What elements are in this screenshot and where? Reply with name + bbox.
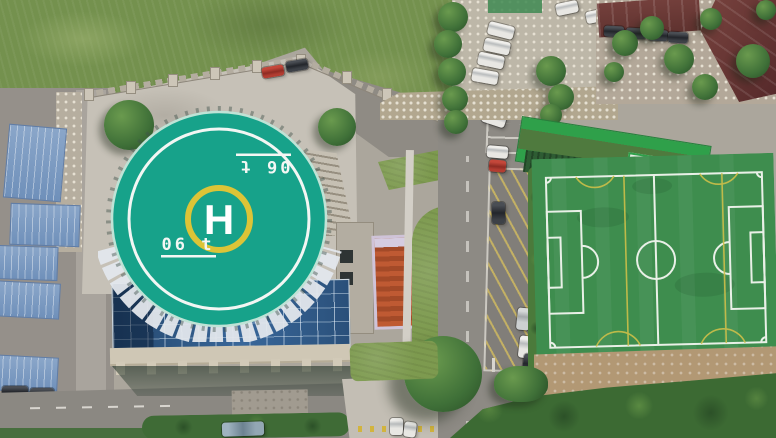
car <box>492 202 505 224</box>
aerial-photo: H 06 t 06 t <box>0 0 776 438</box>
car <box>390 418 403 435</box>
tree <box>640 16 664 40</box>
helipad: H 06 t 06 t <box>98 98 342 342</box>
tree <box>736 44 770 78</box>
weight-text-rotated: 06 t <box>238 156 291 176</box>
tree <box>700 8 722 30</box>
tree <box>536 56 566 86</box>
tree <box>434 30 462 58</box>
shed-roof <box>3 124 67 203</box>
tree <box>438 2 468 32</box>
soccer-field <box>531 153 776 361</box>
wall-pillar <box>168 74 178 87</box>
car <box>222 421 264 436</box>
wall-pillar <box>252 60 262 73</box>
bush-cluster <box>494 366 548 402</box>
car <box>489 159 507 172</box>
helipad-weight-marking-top: 06 t <box>236 154 291 177</box>
tree <box>664 44 694 74</box>
wall-pillar <box>342 71 352 84</box>
shed-roof <box>9 203 80 247</box>
car <box>668 31 689 43</box>
tree <box>442 86 468 112</box>
shed-roof <box>0 245 59 281</box>
tree <box>692 74 718 100</box>
helipad-weight-marking: 06 t <box>161 235 216 258</box>
shed-roof <box>0 280 61 319</box>
green-paint-patch <box>488 0 542 13</box>
tree <box>604 62 624 82</box>
tree <box>438 58 466 86</box>
wall-pillar <box>126 81 136 94</box>
tree <box>612 30 638 56</box>
tree <box>444 110 468 134</box>
tree <box>756 0 776 20</box>
weight-text: 06 t <box>162 235 215 255</box>
south-lawn <box>349 340 438 381</box>
car <box>487 145 509 159</box>
weight-underline-rotated <box>236 154 291 157</box>
road-arrow <box>492 358 495 372</box>
car <box>403 421 417 438</box>
weight-underline <box>161 255 216 258</box>
hedge-row <box>0 428 150 438</box>
wall-pillar <box>210 67 220 80</box>
wall-pillar <box>84 88 94 101</box>
